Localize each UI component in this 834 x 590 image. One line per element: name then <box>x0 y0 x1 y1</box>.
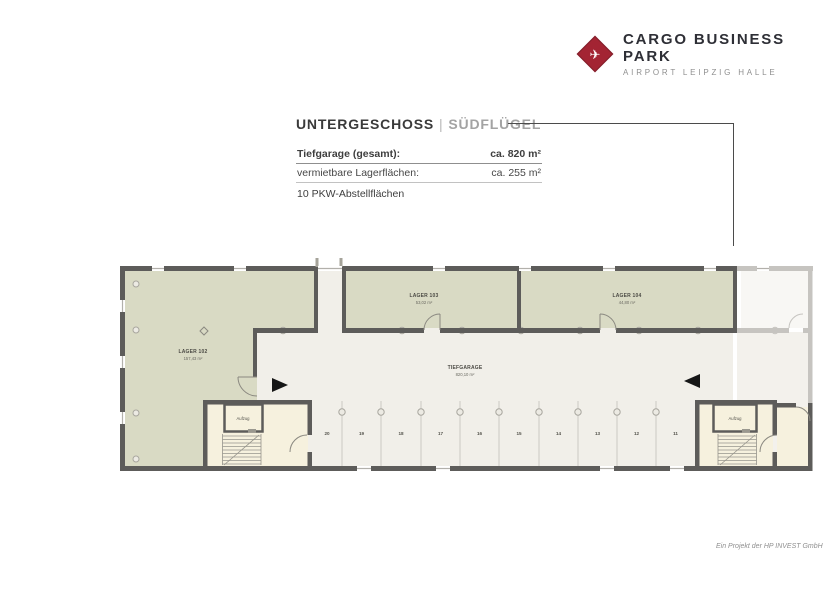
area-summary-table: Tiefgarage (gesamt): ca. 820 m² vermietb… <box>296 145 542 203</box>
row1-value: ca. 820 m² <box>490 148 541 160</box>
area-lager-102: 157,43 m² <box>184 356 203 361</box>
brand-tagline: AIRPORT LEIPZIG HALLE <box>623 68 834 77</box>
title-separator: | <box>434 116 448 132</box>
room-bottom-right <box>777 407 808 466</box>
table-row: Tiefgarage (gesamt): ca. 820 m² <box>296 145 542 164</box>
floor-plan-svg: Aufzug Aufzug LAGER 102 157,43 m² <box>120 258 834 490</box>
brand-name: CARGO BUSINESS PARK <box>623 31 834 65</box>
parking-space: 20 <box>324 431 330 436</box>
row3-label: 10 PKW-Abstellflächen <box>297 188 404 200</box>
red-diamond-shape: ✈ <box>576 36 613 73</box>
table-row: 10 PKW-Abstellflächen <box>296 183 542 203</box>
row1-label: Tiefgarage (gesamt): <box>297 148 400 160</box>
area-tiefgarage: 820,10 m² <box>456 372 475 377</box>
table-row: vermietbare Lagerflächen: ca. 255 m² <box>296 164 542 183</box>
parking-space: 12 <box>634 431 640 436</box>
parking-space: 15 <box>516 431 522 436</box>
area-lager-103: 53,02 m² <box>416 300 433 305</box>
row2-value: ca. 255 m² <box>491 167 541 179</box>
elevator-label-right: Aufzug <box>728 416 742 421</box>
elevator-label-left: Aufzug <box>236 416 250 421</box>
parking-space: 11 <box>673 431 678 436</box>
airplane-icon: ✈ <box>589 48 600 61</box>
brand-text: CARGO BUSINESS PARK AIRPORT LEIPZIG HALL… <box>623 31 834 77</box>
footer-credit: Ein Projekt der HP INVEST GmbH <box>716 543 823 550</box>
page-title: UNTERGESCHOSS|SÜDFLÜGEL <box>296 116 541 132</box>
parking-space: 14 <box>556 431 562 436</box>
area-lager-104: 44,80 m² <box>619 300 636 305</box>
logo-diamond: ✈ <box>576 35 613 73</box>
parking-space: 13 <box>595 431 601 436</box>
label-lager-104: LAGER 104 <box>612 293 641 299</box>
label-tiefgarage: TIEFGARAGE <box>448 365 483 371</box>
parking-space: 16 <box>477 431 483 436</box>
row2-label: vermietbare Lagerflächen: <box>297 167 419 179</box>
floor-plan: Aufzug Aufzug LAGER 102 157,43 m² <box>120 258 834 490</box>
parking-space: 17 <box>438 431 444 436</box>
label-lager-103: LAGER 103 <box>409 293 438 299</box>
brand-logo: ✈ CARGO BUSINESS PARK AIRPORT LEIPZIG HA… <box>576 31 834 77</box>
parking-space: 19 <box>359 431 365 436</box>
brochure-page: ✈ CARGO BUSINESS PARK AIRPORT LEIPZIG HA… <box>0 0 834 590</box>
label-lager-102: LAGER 102 <box>178 349 207 355</box>
parking-space: 18 <box>398 431 404 436</box>
title-floor: UNTERGESCHOSS <box>296 116 434 132</box>
